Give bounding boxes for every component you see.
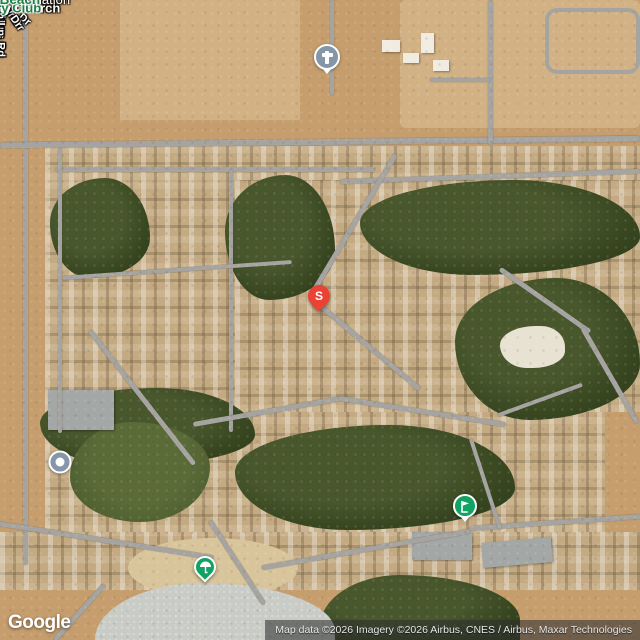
golf-marker[interactable]	[453, 494, 477, 518]
open-desert-strip	[120, 0, 300, 120]
pin-letter: S	[308, 285, 330, 307]
road-label-greenbriar-center: Greenbriar Dr	[0, 0, 38, 10]
association-marker[interactable]	[49, 451, 72, 474]
search-result-pin[interactable]: S	[303, 280, 334, 311]
road-label-lakeview-dr: Lakeview Dr	[0, 0, 24, 31]
road-fairacres	[58, 148, 62, 433]
road-label-fairacres-south: Fairacres Ln	[0, 0, 7, 34]
cross-icon	[325, 51, 329, 64]
road-evergreen	[229, 170, 233, 432]
road-label-smithson-rd-east: Smithson Rd	[0, 0, 35, 7]
road-label-fairacres-north: Fairacres Ln	[0, 0, 7, 34]
road-label-brookside-ln: Brookside Ln	[0, 0, 37, 8]
road-coolglen	[55, 167, 375, 172]
satellite-map-canvas[interactable]: Brookside Ln Smithson Rd Smithson Rd Coo…	[0, 0, 640, 640]
road-church-vertical	[488, 0, 493, 145]
road-label-blue-grass-east: Blue Grass Dr	[0, 0, 33, 29]
church-building	[403, 53, 419, 63]
map-attribution: Map data ©2026 Imagery ©2026 Airbus, CNE…	[265, 620, 640, 640]
road-label-robin-ln: Robin Ln	[0, 0, 25, 12]
beach-umbrella-icon	[199, 561, 212, 574]
road-label-blue-grass-west: Blue Grass Dr	[0, 0, 25, 36]
road-label-smithson-rd-west: Smithson Rd	[0, 0, 35, 7]
sand-trap	[500, 326, 565, 368]
road-label-mountain-springs-south: Mountain Springs Rd	[0, 0, 7, 57]
poi-label-country-club[interactable]: Silver Lakes Country Club	[0, 0, 41, 16]
road-label-tournament-dr-east: Tournament Dr	[0, 0, 40, 7]
road-label-mountain-springs-north: Mountain Springs Rd	[0, 0, 7, 57]
poi-label-community-church[interactable]: Silver Lakes Community Church	[0, 0, 60, 16]
road-label-tournament-dr-west: Tournament Dr	[0, 0, 41, 11]
place-dot-icon	[56, 458, 65, 467]
google-logo: Google	[8, 612, 70, 634]
marker-tail	[322, 68, 332, 74]
road-mountain-springs	[23, 0, 28, 565]
church-marker[interactable]	[314, 44, 340, 70]
road-church-stub	[430, 78, 490, 82]
road-brookside-loop	[545, 8, 640, 74]
poi-label-north-beach[interactable]: North Beach	[0, 0, 40, 8]
poi-label-association[interactable]: Silver Lakes Association	[0, 0, 70, 8]
golf-course-east-band	[360, 180, 640, 275]
church-building	[421, 33, 434, 53]
golf-course-west	[50, 178, 150, 278]
church-building	[433, 60, 449, 71]
church-building	[382, 40, 400, 52]
road-label-clubhouse-dr: Clubhouse Dr	[0, 0, 38, 12]
road-label-evergreen-ln: Evergreen Ln	[0, 0, 7, 36]
marker-tail	[460, 516, 470, 522]
road-label-pkwy-partial: kwy	[0, 0, 11, 13]
golf-flag-icon	[459, 500, 471, 513]
